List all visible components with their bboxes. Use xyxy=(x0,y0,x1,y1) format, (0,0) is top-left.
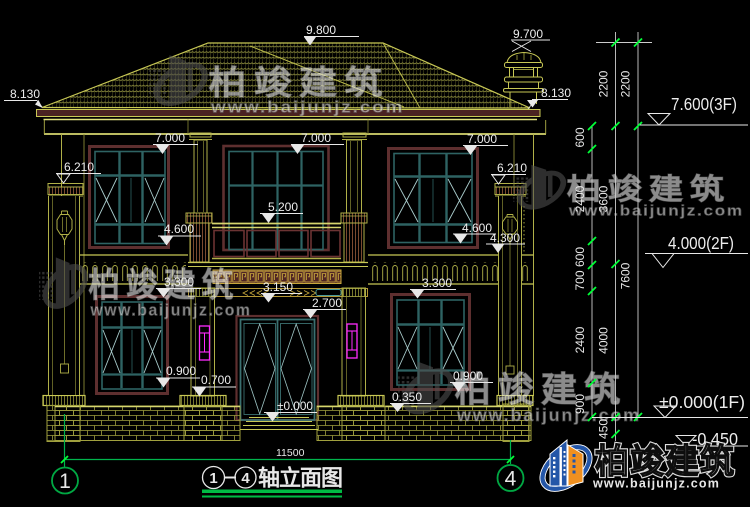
svg-text:0.900: 0.900 xyxy=(166,364,196,378)
svg-text:600: 600 xyxy=(573,247,587,267)
svg-text:1: 1 xyxy=(59,470,71,493)
svg-text:2200: 2200 xyxy=(597,70,611,97)
svg-text:www.baijunjz.com: www.baijunjz.com xyxy=(90,301,252,320)
svg-text:4: 4 xyxy=(505,468,517,491)
svg-text:7.600(3F): 7.600(3F) xyxy=(671,94,737,114)
svg-text:柏竣建筑: 柏竣建筑 xyxy=(595,442,735,481)
svg-text:2200: 2200 xyxy=(619,70,633,97)
svg-text:www.baijunjz.com: www.baijunjz.com xyxy=(210,98,404,117)
svg-text:2400: 2400 xyxy=(573,185,587,212)
svg-text:9.800: 9.800 xyxy=(306,23,336,37)
svg-text:7600: 7600 xyxy=(619,262,633,289)
svg-text:11500: 11500 xyxy=(276,447,305,459)
svg-text:柏竣建筑: 柏竣建筑 xyxy=(208,64,389,101)
svg-text:5.200: 5.200 xyxy=(268,200,298,214)
svg-text:4.600: 4.600 xyxy=(462,221,492,235)
svg-text:www.baijunjz.com: www.baijunjz.com xyxy=(592,477,720,491)
svg-text:0.900: 0.900 xyxy=(453,369,483,383)
svg-text:9.700: 9.700 xyxy=(513,27,543,41)
svg-text:柏竣建筑: 柏竣建筑 xyxy=(567,172,731,205)
svg-text:±0.000: ±0.000 xyxy=(277,399,313,413)
svg-text:3600: 3600 xyxy=(597,185,611,212)
svg-text:600: 600 xyxy=(573,127,587,147)
svg-text:7.000: 7.000 xyxy=(301,131,331,145)
svg-text:轴立面图: 轴立面图 xyxy=(258,466,342,491)
svg-text:3.300: 3.300 xyxy=(164,275,194,289)
svg-text:7.000: 7.000 xyxy=(467,132,497,146)
svg-text:6.210: 6.210 xyxy=(497,161,527,175)
svg-text:2.700: 2.700 xyxy=(312,296,342,310)
svg-text:4000: 4000 xyxy=(597,327,611,354)
svg-text:8.130: 8.130 xyxy=(10,87,40,101)
svg-text:4: 4 xyxy=(241,470,250,487)
svg-text:700: 700 xyxy=(573,270,587,290)
svg-text:6.210: 6.210 xyxy=(64,160,94,174)
svg-text:1: 1 xyxy=(209,470,217,487)
svg-text:4.600: 4.600 xyxy=(164,222,194,236)
svg-text:www.baijunjz.com: www.baijunjz.com xyxy=(568,203,744,219)
svg-text:±0.000(1F): ±0.000(1F) xyxy=(659,392,745,412)
svg-text:3.300: 3.300 xyxy=(422,276,452,290)
svg-text:4.300: 4.300 xyxy=(490,231,520,245)
svg-text:900: 900 xyxy=(573,394,587,414)
svg-text:4.000(2F): 4.000(2F) xyxy=(668,233,734,253)
svg-text:2400: 2400 xyxy=(573,326,587,353)
svg-text:8.130: 8.130 xyxy=(541,86,571,100)
svg-text:3.150: 3.150 xyxy=(263,280,293,294)
svg-text:0.350: 0.350 xyxy=(392,390,422,404)
svg-text:0.700: 0.700 xyxy=(201,373,231,387)
svg-text:7.000: 7.000 xyxy=(155,131,185,145)
svg-text:450: 450 xyxy=(597,419,611,439)
svg-text:www.baijunjz.com: www.baijunjz.com xyxy=(456,406,641,426)
